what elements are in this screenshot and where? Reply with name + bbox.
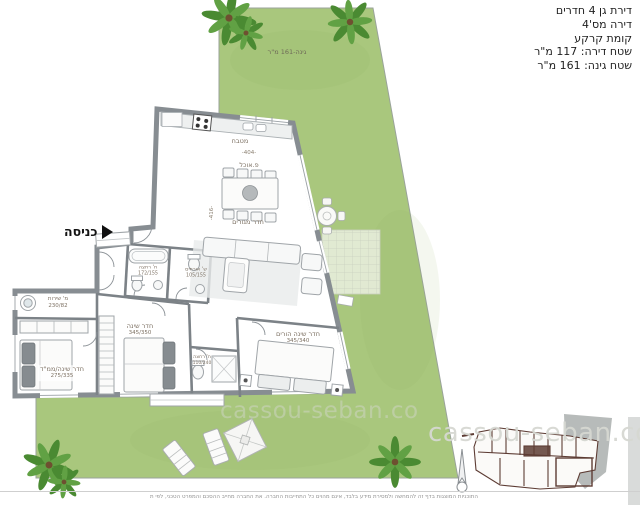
disclaimer-text: התוכניות המוצגות בדף זה להמחשה ולמסירת מ…	[0, 494, 478, 500]
washing-machine	[21, 296, 36, 311]
dimension-living: -416-	[209, 206, 215, 220]
floor-plan-page: דירת גן 4 חדרים דירה מס'4 קומת קרקע שטח …	[0, 0, 640, 505]
room-label-bedroom2: חדר שינה 345/350	[127, 322, 153, 338]
room-label-kitchen: מטבח	[232, 137, 249, 145]
fridge	[162, 113, 182, 127]
coffee-table	[223, 257, 250, 293]
room-label-mamad: חדר שינה/ממ"ד 275/335	[38, 365, 86, 381]
header-line-floor: קומת קרקע	[534, 32, 632, 46]
footer-divider	[0, 491, 640, 492]
entrance-marker: כניסה	[64, 224, 113, 239]
room-label-dining: פ.אוכל	[239, 161, 258, 169]
header-line-garden-area: שטח גינה: 161 מ"ר	[534, 59, 632, 73]
garden-step	[150, 394, 224, 406]
room-label-guest-bath: ח' רחצה 172/155	[138, 265, 158, 278]
stove	[192, 114, 211, 131]
room-label-living: חדר מגורים	[232, 218, 264, 226]
floor-plan-drawing	[0, 0, 640, 505]
bed	[124, 338, 164, 392]
room-label-master-bath: ח' רחצה 110/240	[193, 355, 212, 367]
room-label-guest-wc: ש' אורחים 105/155	[185, 267, 207, 280]
room-label-service: מ' שירות 230/82	[48, 296, 68, 310]
header-line-number: דירה מס'4	[534, 18, 632, 32]
plan-header: דירת גן 4 חדרים דירה מס'4 קומת קרקע שטח …	[534, 4, 632, 73]
header-line-type: דירת גן 4 חדרים	[534, 4, 632, 18]
room-label-master-bedroom: חדר שינה הורים 345/340	[276, 330, 320, 346]
entrance-label: כניסה	[64, 224, 98, 239]
north-arrow-icon	[457, 449, 467, 492]
dimension-dining: -404-	[242, 150, 256, 156]
header-line-apartment-area: שטח דירה: 117 מ"ר	[534, 45, 632, 59]
entrance-arrow-icon	[102, 225, 113, 239]
garden-area-label: גינה-161 מ"ר	[268, 48, 307, 56]
wardrobe	[99, 316, 114, 394]
